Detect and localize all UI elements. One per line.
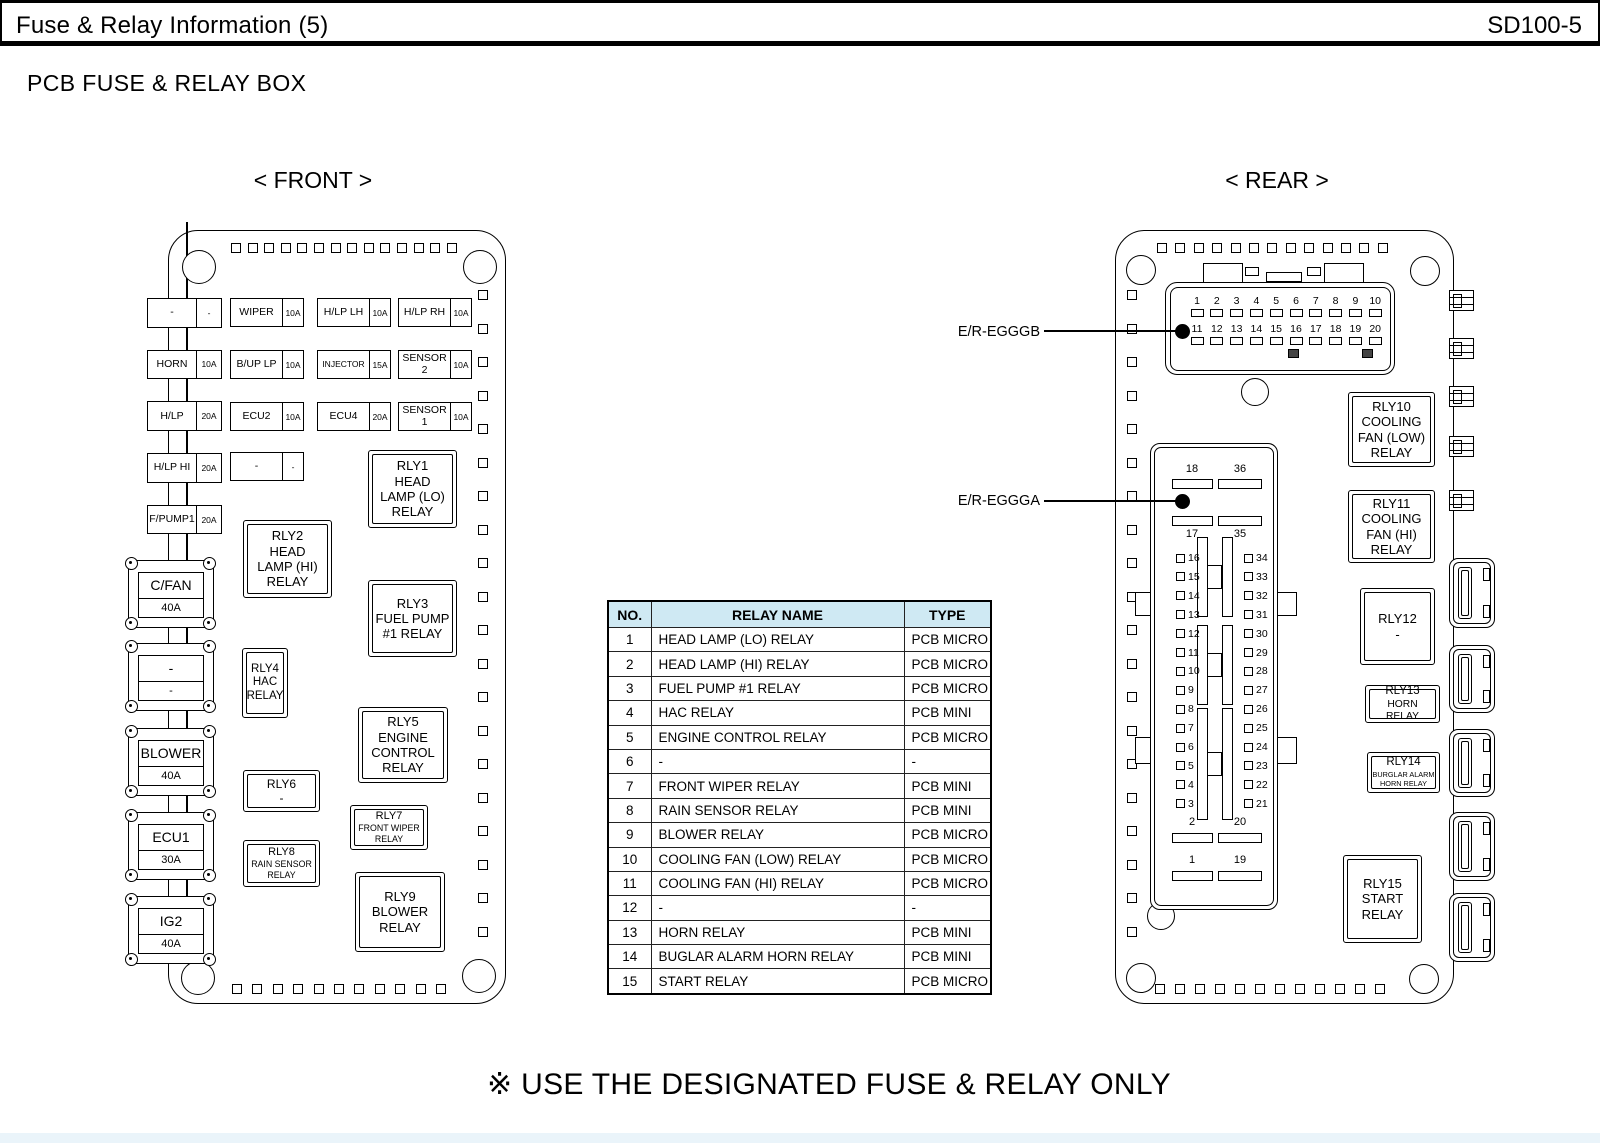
fuse-ecu4: ECU420A [317, 402, 391, 431]
pin-label-19: 19 [1225, 854, 1255, 866]
corner-bolt [125, 640, 138, 653]
cell-relay-name: HORN RELAY [651, 920, 904, 944]
pin-number: 8 [1326, 295, 1346, 307]
fuse-name: WIPER [231, 299, 282, 326]
channel-bridge [1207, 565, 1222, 589]
solder-pad-square [478, 290, 488, 300]
table-row: 7FRONT WIPER RELAYPCB MINI [608, 774, 991, 798]
relay-id: RLY5 [387, 714, 419, 729]
col-header-relay-name: RELAY NAME [651, 601, 904, 628]
solder-pad-square [314, 243, 324, 253]
pin-slot-18 [1172, 479, 1213, 489]
pin-number: 4 [1246, 295, 1266, 307]
relay-body: RLY7FRONT WIPER RELAY [354, 809, 425, 847]
corner-bolt [125, 893, 138, 906]
pin-pad [1329, 309, 1342, 317]
connector-a-pin-23: 23 [1244, 760, 1268, 772]
solder-pad-square [478, 424, 488, 434]
solder-pad-square [364, 243, 374, 253]
connector-a-pin-9: 9 [1176, 684, 1194, 696]
cell-relay-name: - [651, 749, 904, 773]
cell-no: 3 [608, 676, 651, 700]
cell-no: 1 [608, 628, 651, 652]
pin-pad [1210, 337, 1223, 345]
solder-pad-square [478, 726, 488, 736]
relay-sub-label: HORN RELAY [1370, 699, 1436, 723]
pin-slot-20 [1218, 833, 1262, 843]
fuse-rating: 10A [196, 351, 221, 379]
fuse-name: - [231, 453, 282, 480]
pin-number: 10 [1365, 295, 1385, 307]
solder-pad-square [1249, 243, 1259, 253]
pin-number: 8 [1188, 703, 1194, 715]
pin-pad [1244, 724, 1253, 733]
fuse-name: H/LP LH [318, 299, 369, 326]
callout-line [1044, 500, 1182, 502]
page-title: PCB FUSE & RELAY BOX [27, 70, 306, 97]
pin-pad [1176, 743, 1185, 752]
cell-no: 7 [608, 774, 651, 798]
relay-id: RLY14 [1386, 756, 1420, 770]
connector-a-pin-30: 30 [1244, 628, 1268, 640]
cell-relay-name: BUGLAR ALARM HORN RELAY [651, 945, 904, 969]
fuse-rating: 10A [282, 351, 303, 378]
pin-label-18: 18 [1177, 463, 1207, 475]
mounting-hole [1126, 963, 1156, 993]
table-row: 10COOLING FAN (LOW) RELAYPCB MICRO [608, 847, 991, 871]
fuse-rating: 20A [196, 506, 221, 534]
solder-pad-square [478, 357, 488, 367]
cell-no: 15 [608, 969, 651, 994]
cell-type: PCB MINI [904, 920, 991, 944]
maxi-fuse-blank: -- [128, 643, 214, 711]
corner-bolt [203, 869, 216, 882]
solder-pad-square [478, 659, 488, 669]
connector-a-pin-8: 8 [1176, 703, 1194, 715]
relay-sub-label: BURGLAR ALARM HORN RELAY [1372, 770, 1434, 789]
pin-number: 9 [1188, 684, 1194, 696]
page-header: Fuse & Relay Information (5) SD100-5 [0, 0, 1600, 46]
pin-number: 15 [1266, 323, 1286, 335]
pin-number: 2 [1207, 295, 1227, 307]
pin-pad [1244, 648, 1253, 657]
maxi-fuse-name: IG2 [139, 909, 203, 934]
edge-terminal [1449, 338, 1474, 359]
solder-pad-square [1127, 927, 1137, 937]
channel-rail [1222, 537, 1233, 617]
relay-rly11: RLY11COOLING FAN (HI) RELAY [1348, 490, 1435, 563]
connector-a-pin-24: 24 [1244, 741, 1268, 753]
pin-number: 14 [1246, 323, 1266, 335]
solder-pad-square [1323, 243, 1333, 253]
solder-pad-square [1375, 984, 1385, 994]
table-row: 4HAC RELAYPCB MINI [608, 701, 991, 725]
solder-pad-square [1315, 984, 1325, 994]
solder-pad-square [354, 984, 364, 994]
maxi-fuse-window: BLOWER40A [138, 740, 204, 786]
solder-pad-square [478, 525, 488, 535]
mounting-hole [182, 250, 216, 284]
pin-pad [1290, 309, 1303, 317]
relay-rly5: RLY5ENGINE CONTROL RELAY [358, 707, 448, 783]
solder-pad-square [1127, 893, 1137, 903]
table-row: 6-- [608, 749, 991, 773]
solder-pad-square [430, 243, 440, 253]
cell-no: 13 [608, 920, 651, 944]
pin-pad [1191, 309, 1204, 317]
relay-rly12: RLY12- [1360, 588, 1435, 665]
solder-pad-square [1255, 984, 1265, 994]
relay-id: RLY11 [1373, 496, 1411, 511]
page-bottom-strip [0, 1133, 1600, 1143]
relay-rly14: RLY14BURGLAR ALARM HORN RELAY [1367, 752, 1440, 793]
footer-note: ※ USE THE DESIGNATED FUSE & RELAY ONLY [0, 1067, 1600, 1102]
cell-relay-name: HEAD LAMP (LO) RELAY [651, 628, 904, 652]
pin-number: 27 [1256, 684, 1268, 696]
solder-pad-square [380, 243, 390, 253]
connector-b-screw [1362, 349, 1373, 358]
connector-b-pin-12: 12 [1207, 323, 1227, 345]
corner-bolt [125, 617, 138, 630]
fuse-wiper: WIPER10A [230, 298, 304, 327]
pin-pad [1270, 337, 1283, 345]
callout-er-egggb: E/R-EGGGB [948, 324, 1040, 340]
pin-number: 4 [1188, 779, 1194, 791]
relay-body: RLY2HEAD LAMP (HI) RELAY [247, 524, 329, 595]
cell-relay-name: COOLING FAN (HI) RELAY [651, 871, 904, 895]
pin-pad [1244, 629, 1253, 638]
corner-bolt [125, 869, 138, 882]
cell-no: 14 [608, 945, 651, 969]
solder-pad-square [1127, 558, 1137, 568]
relay-id: RLY4 [251, 663, 279, 677]
relay-sub-label: HEAD LAMP (LO) RELAY [380, 474, 445, 520]
pin-label-1: 1 [1177, 854, 1207, 866]
solder-pad-square [478, 826, 488, 836]
solder-pad-square [478, 391, 488, 401]
fuse-rating: 20A [196, 402, 221, 430]
relay-rly7: RLY7FRONT WIPER RELAY [350, 805, 428, 850]
connector-b-pin-19: 19 [1345, 323, 1365, 345]
table-row: 9BLOWER RELAYPCB MICRO [608, 823, 991, 847]
connector-a-channel [1197, 625, 1233, 705]
fuse-blank: -- [147, 298, 222, 328]
pin-number: 31 [1256, 609, 1268, 621]
relay-body: RLY11COOLING FAN (HI) RELAY [1352, 494, 1432, 560]
pin-number: 28 [1256, 665, 1268, 677]
pin-number: 11 [1187, 323, 1207, 335]
relay-id: RLY15 [1363, 876, 1402, 891]
pin-pad [1176, 686, 1185, 695]
connector-a-pin-29: 29 [1244, 647, 1268, 659]
fuse-name: - [148, 299, 196, 327]
solder-pad-square [1127, 793, 1137, 803]
solder-pad-square [416, 984, 426, 994]
pin-slot-2 [1172, 833, 1213, 843]
channel-rail [1222, 708, 1233, 820]
solder-pad-square [1267, 243, 1277, 253]
fuse-b-up-lp: B/UP LP10A [230, 350, 304, 379]
table-row: 12-- [608, 896, 991, 920]
pin-pad [1369, 309, 1382, 317]
relay-sub-label: HEAD LAMP (HI) RELAY [257, 544, 317, 590]
pin-pad [1210, 309, 1223, 317]
relay-sub-label: ENGINE CONTROL RELAY [371, 730, 435, 776]
cell-relay-name: ENGINE CONTROL RELAY [651, 725, 904, 749]
relay-rly3: RLY3FUEL PUMP #1 RELAY [368, 580, 457, 657]
connector-a-pin-12: 12 [1176, 628, 1200, 640]
corner-bolt [203, 557, 216, 570]
solder-pad-square [281, 243, 291, 253]
cell-no: 9 [608, 823, 651, 847]
corner-bolt [125, 953, 138, 966]
connector-a-pin-33: 33 [1244, 571, 1268, 583]
corner-bolt [203, 640, 216, 653]
solder-pad-square [1275, 984, 1285, 994]
mounting-hole [1126, 255, 1156, 285]
relay-sub-label: START RELAY [1362, 891, 1404, 922]
connector-a-pin-31: 31 [1244, 609, 1268, 621]
solder-pad-square [1127, 458, 1137, 468]
pin-slot-36 [1218, 479, 1262, 489]
pin-number: 10 [1188, 665, 1200, 677]
solder-pad-square [1215, 984, 1225, 994]
solder-pad-square [314, 984, 324, 994]
pin-pad [1244, 799, 1253, 808]
connector-a-pin-16: 16 [1176, 552, 1200, 564]
edge-relay-socket [1449, 558, 1495, 628]
solder-pad-square [478, 625, 488, 635]
pin-number: 9 [1345, 295, 1365, 307]
connector-a-tab [1277, 592, 1297, 616]
solder-pad-square [297, 243, 307, 253]
pin-slot-19 [1218, 871, 1262, 881]
socket-notch [1483, 605, 1490, 618]
relay-body: RLY10COOLING FAN (LOW) RELAY [1352, 396, 1432, 464]
maxi-fuse-rating: 40A [139, 598, 203, 617]
fuse-name: HORN [148, 351, 196, 379]
solder-pad-square [1195, 984, 1205, 994]
pin-pad [1349, 309, 1362, 317]
cell-type: PCB MICRO [904, 725, 991, 749]
cell-no: 2 [608, 652, 651, 676]
cell-type: PCB MICRO [904, 676, 991, 700]
solder-pad-square [478, 324, 488, 334]
solder-pad-square [1175, 984, 1185, 994]
table-row: 5ENGINE CONTROL RELAYPCB MICRO [608, 725, 991, 749]
relay-body: RLY4HAC RELAY [246, 652, 285, 715]
connector-a-pin-14: 14 [1176, 590, 1200, 602]
table-row: 8RAIN SENSOR RELAYPCB MINI [608, 798, 991, 822]
connector-a-tab [1135, 737, 1151, 764]
connector-a-channel [1197, 708, 1233, 820]
relay-body: RLY12- [1364, 592, 1432, 662]
relay-sub-label: FRONT WIPER RELAY [358, 823, 419, 845]
relay-sub-label: RAIN SENSOR RELAY [251, 859, 312, 881]
cell-no: 11 [608, 871, 651, 895]
maxi-fuse-name: ECU1 [139, 825, 203, 850]
maxi-fuse-window: ECU130A [138, 824, 204, 870]
rear-view-label: < REAR > [1192, 167, 1362, 194]
cell-relay-name: RAIN SENSOR RELAY [651, 798, 904, 822]
socket-notch [1483, 739, 1490, 752]
cell-type: PCB MICRO [904, 823, 991, 847]
solder-pad-square [231, 243, 241, 253]
solder-pad-square [375, 984, 385, 994]
connector-b-pin-3: 3 [1227, 295, 1247, 317]
relay-rly1: RLY1HEAD LAMP (LO) RELAY [368, 450, 457, 528]
connector-b-key [1245, 267, 1259, 276]
pin-label-2: 2 [1177, 816, 1207, 828]
solder-pad-square [252, 984, 262, 994]
solder-pad-square [478, 558, 488, 568]
fuse-rating: 20A [369, 403, 390, 430]
pin-number: 7 [1306, 295, 1326, 307]
solder-pad-square [1295, 984, 1305, 994]
connector-a-tab [1277, 737, 1297, 764]
solder-pad-square [1335, 984, 1345, 994]
solder-pad-square [1157, 243, 1167, 253]
socket-notch [1483, 774, 1490, 787]
fuse-h-lp: H/LP20A [147, 401, 222, 431]
pin-pad [1244, 686, 1253, 695]
cell-relay-name: HEAD LAMP (HI) RELAY [651, 652, 904, 676]
pin-pad [1176, 724, 1185, 733]
table-row: 2HEAD LAMP (HI) RELAYPCB MICRO [608, 652, 991, 676]
pin-slot-35 [1218, 516, 1262, 526]
solder-pad-square [1341, 243, 1351, 253]
pin-number: 13 [1227, 323, 1247, 335]
relay-sub-label: - [1395, 627, 1399, 642]
fuse-rating: 10A [369, 299, 390, 326]
solder-pad-square [1212, 243, 1222, 253]
socket-notch [1483, 568, 1490, 581]
connector-a-pin-11: 11 [1176, 647, 1199, 659]
fuse-name: F/PUMP1 [148, 506, 196, 534]
relay-body: RLY1HEAD LAMP (LO) RELAY [372, 454, 454, 525]
solder-pad-square [1231, 243, 1241, 253]
solder-pad-square [293, 984, 303, 994]
cell-type: - [904, 896, 991, 920]
relay-sub-label: COOLING FAN (HI) RELAY [1362, 511, 1422, 557]
relay-id: RLY12 [1378, 611, 1417, 626]
fuse-rating: 20A [196, 454, 221, 482]
cell-type: PCB MINI [904, 701, 991, 725]
mounting-hole [462, 959, 496, 993]
fuse-ecu2: ECU210A [230, 402, 304, 431]
pin-number: 21 [1256, 798, 1268, 810]
maxi-fuse-name: - [139, 656, 203, 681]
fuse-rating: 10A [450, 403, 471, 430]
edge-relay-socket [1449, 893, 1495, 962]
edge-terminal [1449, 436, 1474, 457]
maxi-fuse-rating: 40A [139, 934, 203, 953]
table-row: 1HEAD LAMP (LO) RELAYPCB MICRO [608, 628, 991, 652]
pin-number: 7 [1188, 722, 1194, 734]
connector-b-key [1307, 267, 1321, 276]
pin-number: 18 [1326, 323, 1346, 335]
relay-id: RLY3 [397, 596, 429, 611]
connector-a-pin-22: 22 [1244, 779, 1268, 791]
solder-pad-square [478, 927, 488, 937]
solder-pad-square [414, 243, 424, 253]
relay-body: RLY9BLOWER RELAY [359, 876, 442, 949]
channel-bridge [1207, 653, 1222, 677]
fuse-h-lp-hi: H/LP HI20A [147, 453, 222, 483]
pin-pad [1244, 761, 1253, 770]
corner-bolt [125, 557, 138, 570]
solder-pad-square [334, 984, 344, 994]
table-row: 14BUGLAR ALARM HORN RELAYPCB MINI [608, 945, 991, 969]
socket-notch [1483, 690, 1490, 703]
pin-number: 3 [1188, 798, 1194, 810]
connector-a-pin-26: 26 [1244, 703, 1268, 715]
solder-pad-square [1127, 726, 1137, 736]
relay-body: RLY3FUEL PUMP #1 RELAY [372, 584, 454, 654]
connector-a-pin-4: 4 [1176, 779, 1194, 791]
pin-pad [1176, 610, 1185, 619]
pin-number: 34 [1256, 552, 1268, 564]
connector-b-pin-15: 15 [1266, 323, 1286, 345]
fuse-rating: 10A [450, 299, 471, 326]
cell-type: PCB MINI [904, 945, 991, 969]
pin-pad [1176, 629, 1185, 638]
connector-b-pin-4: 4 [1246, 295, 1266, 317]
solder-pad-square [1127, 625, 1137, 635]
fuse-name: H/LP HI [148, 454, 196, 482]
solder-pad-square [1127, 357, 1137, 367]
connector-b-latch [1266, 272, 1302, 282]
pin-pad [1176, 799, 1185, 808]
fuse-h-lp-lh: H/LP LH10A [317, 298, 391, 327]
solder-pad-square [1304, 243, 1314, 253]
relay-body: RLY14BURGLAR ALARM HORN RELAY [1371, 756, 1437, 790]
relay-id: RLY13 [1385, 685, 1419, 699]
cell-type: PCB MICRO [904, 847, 991, 871]
corner-bolt [125, 809, 138, 822]
connector-b-pin-11: 11 [1187, 323, 1207, 345]
edge-relay-socket [1449, 812, 1495, 881]
relay-id: RLY2 [272, 528, 304, 543]
connector-b-pin-5: 5 [1266, 295, 1286, 317]
relay-body: RLY5ENGINE CONTROL RELAY [362, 711, 445, 780]
pin-pad [1244, 554, 1253, 563]
pin-number: 13 [1188, 609, 1200, 621]
socket-notch [1483, 822, 1490, 835]
corner-bolt [125, 700, 138, 713]
fuse-f-pump1: F/PUMP120A [147, 505, 222, 535]
connector-a-pin-25: 25 [1244, 722, 1268, 734]
fuse-horn: HORN10A [147, 350, 222, 380]
cell-relay-name: FUEL PUMP #1 RELAY [651, 676, 904, 700]
maxi-fuse-window: C/FAN40A [138, 572, 204, 618]
connector-b-pin-17: 17 [1306, 323, 1326, 345]
cell-relay-name: BLOWER RELAY [651, 823, 904, 847]
cell-type: PCB MINI [904, 774, 991, 798]
pin-pad [1309, 337, 1322, 345]
solder-pad-square [478, 692, 488, 702]
cell-relay-name: FRONT WIPER RELAY [651, 774, 904, 798]
pin-number: 33 [1256, 571, 1268, 583]
fuse-name: B/UP LP [231, 351, 282, 378]
relay-rly4: RLY4HAC RELAY [242, 648, 288, 718]
col-header-no: NO. [608, 601, 651, 628]
fuse-sensor-1: SENSOR 110A [398, 402, 472, 431]
solder-pad-square [273, 984, 283, 994]
solder-pad-square [436, 984, 446, 994]
front-view-label: < FRONT > [228, 167, 398, 194]
pin-pad [1309, 309, 1322, 317]
